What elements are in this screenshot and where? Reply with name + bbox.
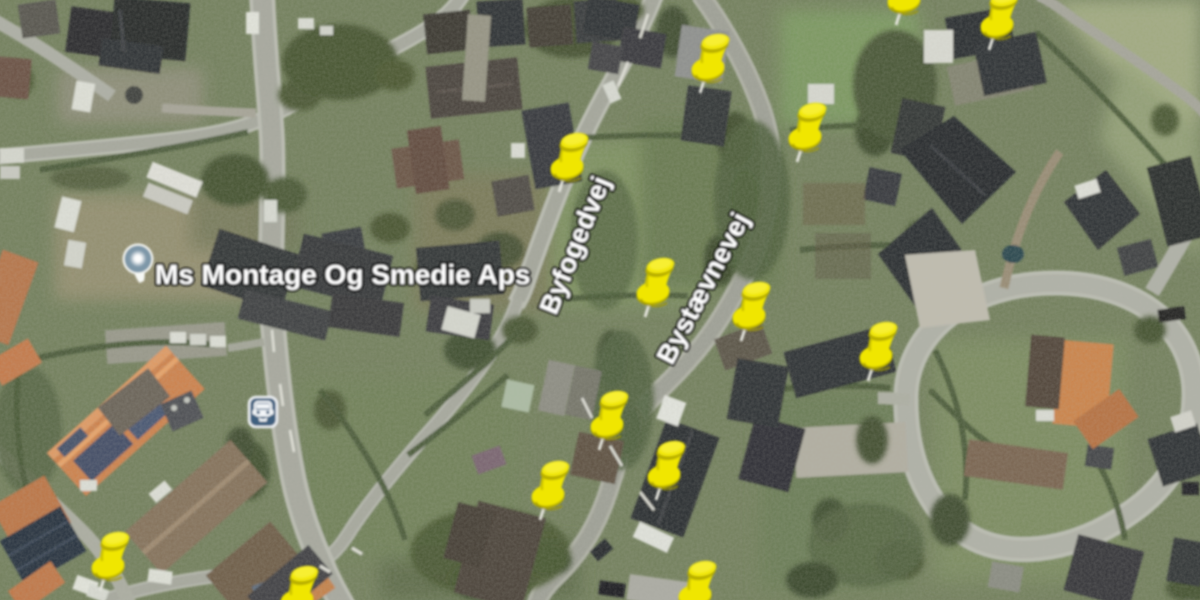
svg-text:Ms Montage Og Smedie Aps: Ms Montage Og Smedie Aps (155, 259, 530, 290)
